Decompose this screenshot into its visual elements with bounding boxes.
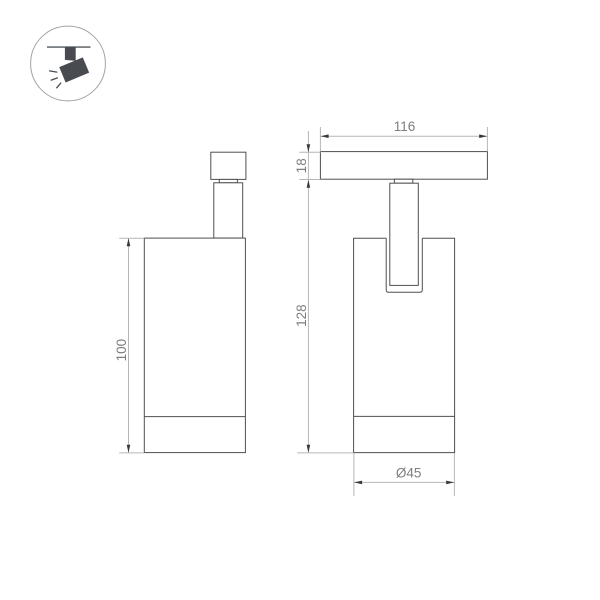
svg-text:128: 128 xyxy=(294,304,309,327)
svg-text:18: 18 xyxy=(294,158,309,173)
svg-text:Ø45: Ø45 xyxy=(396,466,422,481)
svg-text:116: 116 xyxy=(394,119,416,134)
svg-text:100: 100 xyxy=(114,339,129,362)
